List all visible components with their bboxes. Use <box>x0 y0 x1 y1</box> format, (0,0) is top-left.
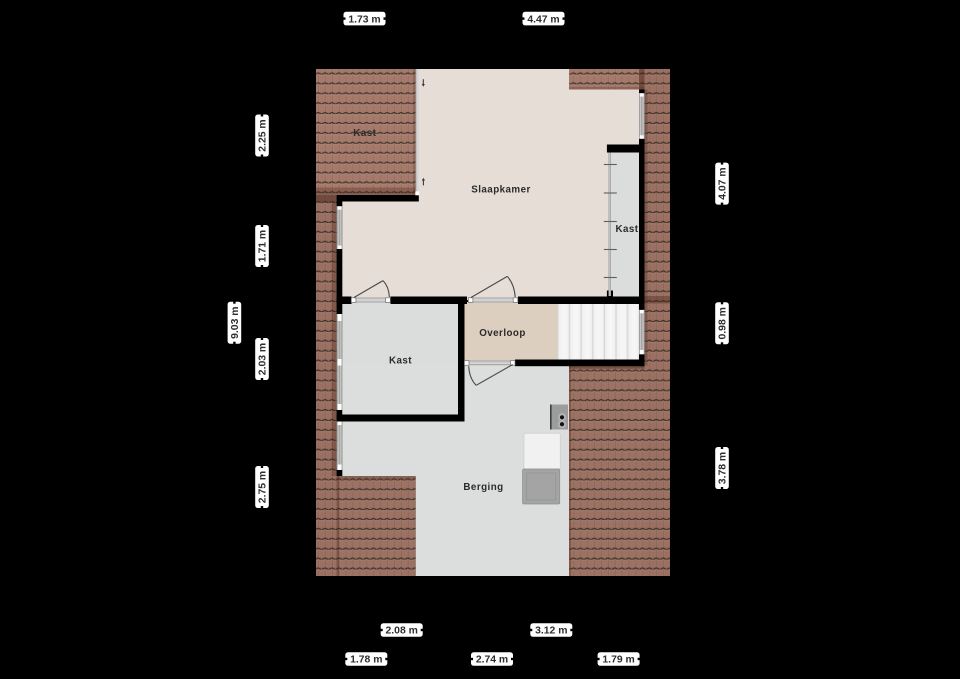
svg-text:3.78 m: 3.78 m <box>718 452 729 484</box>
svg-text:0.98 m: 0.98 m <box>718 307 729 339</box>
svg-text:1.79 m: 1.79 m <box>602 655 634 666</box>
svg-text:3.12 m: 3.12 m <box>535 626 567 637</box>
svg-text:Kast: Kast <box>615 224 638 235</box>
svg-text:Overloop: Overloop <box>479 328 526 339</box>
svg-text:4.07 m: 4.07 m <box>718 167 729 199</box>
svg-text:1.78 m: 1.78 m <box>350 655 382 666</box>
svg-text:Berging: Berging <box>463 482 503 493</box>
svg-text:2.03 m: 2.03 m <box>258 343 269 375</box>
svg-text:2.75 m: 2.75 m <box>258 471 269 503</box>
svg-text:1.71 m: 1.71 m <box>258 230 269 262</box>
svg-text:Slaapkamer: Slaapkamer <box>471 184 531 195</box>
svg-text:2.08 m: 2.08 m <box>386 626 418 637</box>
svg-text:4.47 m: 4.47 m <box>527 14 559 25</box>
svg-text:2.74 m: 2.74 m <box>476 655 508 666</box>
svg-text:Kast: Kast <box>353 128 376 139</box>
svg-text:9.03 m: 9.03 m <box>230 307 241 339</box>
svg-text:Kast: Kast <box>389 355 412 366</box>
svg-text:2.25 m: 2.25 m <box>258 119 269 151</box>
svg-text:1.73 m: 1.73 m <box>348 14 380 25</box>
